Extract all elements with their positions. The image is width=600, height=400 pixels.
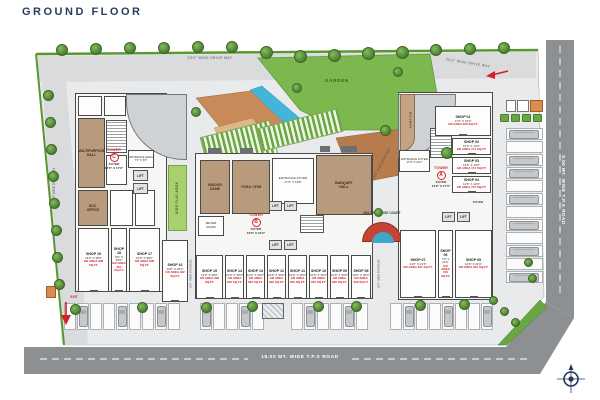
tree-icon xyxy=(511,318,520,327)
tower-c-badge: TOWER C FOYER 16'0" X 17'0" xyxy=(99,148,129,170)
parking-stall xyxy=(90,303,102,330)
floor-plan-page: { "title": "GROUND FLOOR", "roads": { "b… xyxy=(0,0,600,400)
entry-arrow-icon xyxy=(484,66,510,80)
kids-play-strip: KIDS PLAY AREA xyxy=(168,165,187,231)
tree-icon xyxy=(260,46,273,59)
shop-unit: SHOP 067'0" X 21'6"GR AREA 150 SQ.FT. xyxy=(438,230,453,298)
tree-icon xyxy=(201,302,212,313)
room-small xyxy=(78,96,102,116)
exit-arrow-icon xyxy=(58,300,74,326)
passage-right-label: 10'0" WIDE PASSAGE xyxy=(376,260,380,289)
lift-b2: LIFT xyxy=(284,201,297,211)
tree-icon xyxy=(54,279,65,290)
tree-icon xyxy=(500,307,509,316)
parking-stall xyxy=(213,303,225,330)
compass-icon xyxy=(556,364,586,394)
yoga-gym-room: YOGA / GYM xyxy=(232,160,270,214)
tree-icon xyxy=(52,252,63,263)
entrance-foyer-b: ENTRANCE FOYER 17'3" X 16'5" xyxy=(272,158,314,204)
right-road-label: 9.00 MT. WIDE T.P.S ROAD xyxy=(556,120,566,260)
garden-label: GARDEN xyxy=(312,79,362,84)
lift-b1: LIFT xyxy=(269,201,282,211)
shop-area: GR AREA 608 SQ.FT. xyxy=(79,260,108,267)
tree-icon xyxy=(46,144,57,155)
balcony-tab xyxy=(208,148,221,154)
tower-b-badge: TOWER B FOYER 16'0" X 21'0" xyxy=(243,213,269,235)
tree-icon xyxy=(56,44,68,56)
hedge-box xyxy=(522,114,531,122)
tree-icon xyxy=(313,301,324,312)
shop-area: GR AREA 301 SQ.FT. xyxy=(403,266,433,269)
shop-unit: SHOP 0910'0" X 30'0"GR AREA 300 SQ.FT. xyxy=(330,255,349,299)
parking-stall xyxy=(390,303,402,330)
passage-left-label: 10'0" WIDE PASSAGE xyxy=(188,260,192,289)
lift-b3: LIFT xyxy=(269,240,282,250)
shop-unit: SHOP 1916'0" X 38'0"GR AREA 608 SQ.FT. xyxy=(78,228,109,292)
tree-icon xyxy=(430,44,442,56)
lift-b4: LIFT xyxy=(284,240,297,250)
shop-unit: SHOP 1716'0" X 38'0"GR AREA 608 SQ.FT. xyxy=(129,228,160,292)
tree-icon xyxy=(528,274,537,283)
tree-icon xyxy=(192,41,204,53)
parking-stall xyxy=(330,303,342,330)
shop-unit: SHOP 0414'6" X 12'0"GR AREA 174 SQ.FT. xyxy=(452,176,491,193)
kids-play-label: KIDS PLAY AREA xyxy=(176,182,180,214)
shop-area: GR AREA 408 SQ.FT. xyxy=(448,123,478,126)
tree-icon xyxy=(294,50,307,63)
shop-area: GR AREA 300 SQ.FT. xyxy=(310,277,327,284)
shop-area: GR AREA 300 SQ.FT. xyxy=(352,277,370,284)
shop-unit: SHOP 0514'0" X 21'6"GR AREA 301 SQ.FT. xyxy=(455,230,492,298)
shop-area: GR AREA 174 SQ.FT. xyxy=(457,186,487,189)
shop-area: GR AREA 390 SQ.FT. xyxy=(197,277,222,284)
car-icon xyxy=(444,306,453,327)
hedge-box xyxy=(500,114,509,122)
tower-b-tag: TOWER xyxy=(243,213,269,217)
transformer-box xyxy=(530,100,543,112)
shop-area: GR AREA 174 SQ.FT. xyxy=(457,167,487,170)
car-icon xyxy=(483,306,492,327)
car-icon xyxy=(157,306,166,327)
banquet-hall-room: BANQUET HALL xyxy=(316,155,372,215)
tree-icon xyxy=(124,42,136,54)
shop-unit: SHOP 1210'0" X 30'0"GR AREA 300 SQ.FT. xyxy=(267,255,286,299)
car-icon xyxy=(509,130,539,139)
tree-icon xyxy=(415,300,426,311)
tree-icon xyxy=(328,49,341,62)
car-icon xyxy=(509,247,539,256)
shop-unit: SHOP 0117'0" X 24'0"GR AREA 408 SQ.FT. xyxy=(435,106,491,136)
shop-unit: SHOP 0214'6" X 12'0"GR AREA 174 SQ.FT. xyxy=(452,138,491,155)
tree-icon xyxy=(524,258,533,267)
tree-icon xyxy=(393,67,403,77)
lift-a2: LIFT xyxy=(457,212,470,222)
shop-unit: SHOP 1410'0" X 30'0"GR AREA 300 SQ.FT. xyxy=(225,255,244,299)
tower-c-foyer: FOYER 16'0" X 17'0" xyxy=(99,163,129,170)
balcony-tab xyxy=(320,146,330,152)
balcony-tab xyxy=(240,148,253,154)
shop-area: GR AREA 300 SQ.FT. xyxy=(247,277,264,284)
car-icon xyxy=(118,306,127,327)
ramp-label-wrap: RAMP DN xyxy=(402,118,419,122)
shop-area: GR AREA 174 SQ.FT. xyxy=(457,148,487,151)
tree-icon xyxy=(137,302,148,313)
parking-stall xyxy=(429,303,441,330)
shop-area: GR AREA 301 SQ.FT. xyxy=(459,266,489,269)
tree-icon xyxy=(441,147,453,159)
tree-icon xyxy=(90,43,102,55)
shop-unit: SHOP 0810'0" X 30'0"GR AREA 300 SQ.FT. xyxy=(351,255,371,299)
shop-unit: SHOP 1513'0" X 30'0"GR AREA 390 SQ.FT. xyxy=(196,255,223,299)
parking-stall xyxy=(506,141,543,153)
page-title: GROUND FLOOR xyxy=(22,6,142,18)
tree-icon xyxy=(247,301,258,312)
tree-icon xyxy=(49,198,60,209)
room-small xyxy=(104,96,126,116)
shop-unit: SHOP 0714'0" X 21'6"GR AREA 301 SQ.FT. xyxy=(400,230,436,298)
tree-icon xyxy=(464,43,476,55)
tree-icon xyxy=(43,90,54,101)
car-icon xyxy=(509,169,539,178)
tree-icon xyxy=(459,299,470,310)
shop-unit: SHOP 1110'0" X 30'0"GR AREA 300 SQ.FT. xyxy=(288,255,307,299)
ramp-label: RAMP DN xyxy=(408,112,412,129)
tree-icon xyxy=(191,107,201,117)
tree-icon xyxy=(362,47,375,60)
shop-area: GR AREA 300 SQ.FT. xyxy=(268,277,285,284)
tree-icon xyxy=(351,301,362,312)
tower-b-letter: B xyxy=(252,218,261,227)
shop-area: GR AREA 150 SQ.FT. xyxy=(439,265,452,278)
lift-c2: LIFT xyxy=(133,183,148,194)
room-small xyxy=(110,190,133,226)
tree-icon xyxy=(226,41,238,53)
car-icon xyxy=(509,221,539,230)
balcony-tab xyxy=(341,146,357,152)
shop-unit: SHOP 0314'6" X 12'0"GR AREA 174 SQ.FT. xyxy=(452,157,491,174)
entrance-area-c: ENTRANCE AREA 7'0" X 6'5" xyxy=(128,150,154,168)
tree-icon xyxy=(489,296,498,305)
parking-stall xyxy=(506,180,543,192)
parking-stall xyxy=(506,232,543,244)
stair-tower-b xyxy=(300,215,324,233)
tree-icon xyxy=(158,42,170,54)
tree-icon xyxy=(498,42,510,54)
drive-top-left-label: 20'0" WIDE DRIVE WAY xyxy=(165,57,255,61)
car-icon xyxy=(509,156,539,165)
shop-unit: SHOP 1612'0" X 36'0"GR AREA 432 SQ.FT. xyxy=(162,240,188,302)
tree-icon xyxy=(51,225,62,236)
meter-room: METER ROOM xyxy=(198,216,224,236)
car-icon xyxy=(405,306,414,327)
tower-c-letter: C xyxy=(110,153,119,162)
tower-b-foyer: FOYER 16'0" X 21'0" xyxy=(243,228,269,235)
parking-stall xyxy=(291,303,303,330)
parking-stall xyxy=(226,303,238,330)
court-inner xyxy=(372,232,394,243)
basement-ramp xyxy=(262,303,284,319)
shop-unit: SHOP 1010'0" X 30'0"GR AREA 300 SQ.FT. xyxy=(309,255,328,299)
society-office-room: SOC. OFFICE xyxy=(78,190,108,226)
parking-stall xyxy=(468,303,480,330)
bottom-road-label: 18.00 MT. WIDE T.P.S ROAD xyxy=(230,355,370,361)
parking-stall xyxy=(103,303,115,330)
hedge-box xyxy=(533,114,542,122)
parking-stall xyxy=(506,206,543,218)
shop-area: GR AREA 300 SQ.FT. xyxy=(331,277,348,284)
foyer-small-label: FOYER xyxy=(466,201,490,204)
car-icon xyxy=(509,195,539,204)
shop-area: GR AREA 300 SQ.FT. xyxy=(226,277,243,284)
tree-icon xyxy=(380,125,391,136)
tree-icon xyxy=(48,171,59,182)
tower-c-tag: TOWER xyxy=(99,148,129,152)
utility-box xyxy=(517,100,529,112)
utility-box xyxy=(506,100,516,112)
tree-icon xyxy=(396,46,409,59)
tree-icon xyxy=(292,83,302,93)
shop-area: GR AREA 432 SQ.FT. xyxy=(163,271,187,278)
shop-area: GR AREA 608 SQ.FT. xyxy=(130,260,159,267)
room-small xyxy=(135,190,155,226)
indoor-game-room: INDOOR GAME xyxy=(200,160,230,214)
tree-icon xyxy=(374,208,383,217)
shop-unit: SHOP 188'0" X 38'0"GR AREA 304 SQ.FT. xyxy=(111,228,127,292)
parking-stall xyxy=(168,303,180,330)
shop-unit: SHOP 1310'0" X 30'0"GR AREA 300 SQ.FT. xyxy=(246,255,265,299)
tower-a-letter: A xyxy=(437,171,446,180)
lift-c1: LIFT xyxy=(133,170,148,181)
lift-a1: LIFT xyxy=(442,212,455,222)
hedge-box xyxy=(511,114,520,122)
shop-area: GR AREA 304 SQ.FT. xyxy=(112,262,126,272)
shop-area: GR AREA 300 SQ.FT. xyxy=(289,277,306,284)
tree-icon xyxy=(45,117,56,128)
